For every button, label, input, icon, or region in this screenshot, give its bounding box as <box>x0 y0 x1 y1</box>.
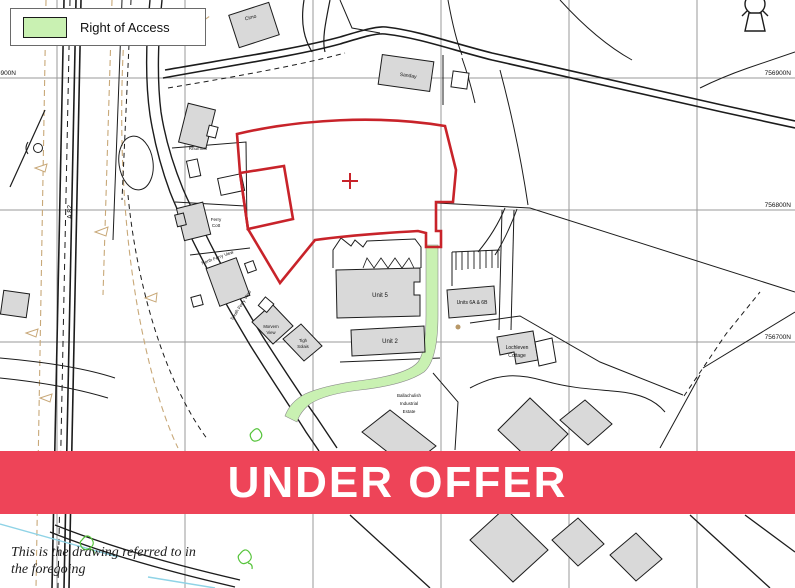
boundary-inner-parcel <box>240 166 293 229</box>
northing-label: 756700N <box>765 334 792 341</box>
under-offer-text: UNDER OFFER <box>228 458 568 508</box>
under-offer-banner: UNDER OFFER <box>0 451 795 514</box>
legend-box: Right of Access <box>10 8 206 46</box>
building-bottom-1 <box>470 508 548 582</box>
northing-label: 756800N <box>765 202 792 209</box>
label-units6: Units 6A & 6B <box>457 300 489 306</box>
label-ballachulish: Ballachulish <box>397 393 422 398</box>
label-ferry-cott: Cott <box>212 223 221 228</box>
slope-triangles <box>26 164 157 402</box>
label-a82: A 82 <box>67 205 74 219</box>
building-bottom-3 <box>610 533 662 581</box>
site-plan: 756900N 756800N 756700N 756900N <box>0 0 795 588</box>
building-morvern-view <box>252 304 322 361</box>
label-tigh-solais: Tigh <box>299 338 308 343</box>
certification-text: This is the drawing referred to in the f… <box>11 544 196 578</box>
label-morvern-view: View <box>266 330 276 335</box>
building-lower-right-2 <box>560 400 612 445</box>
outbuilding <box>451 71 469 89</box>
building-bottom-2 <box>552 518 604 566</box>
centre-cross-marker <box>342 173 358 189</box>
label-morvern-view: Morvern <box>263 324 279 329</box>
building-ferry-cott <box>175 202 211 241</box>
outbuilding <box>245 261 257 273</box>
northing-label: 756900N <box>765 70 792 77</box>
manhole-marker <box>456 325 461 330</box>
label-ballachulish: Estate <box>403 409 416 414</box>
legend-label: Right of Access <box>80 20 170 35</box>
outbuilding <box>191 295 203 307</box>
label-unit5: Unit 5 <box>372 293 388 299</box>
legend-swatch-right-of-access <box>23 17 67 38</box>
north-arrow-symbol <box>742 0 768 31</box>
building-unit5-front <box>333 238 421 268</box>
certification-line: This is the drawing referred to in <box>11 544 196 561</box>
label-rhumner: Rhumner <box>189 146 208 151</box>
label-lochleven: Cottage <box>508 353 526 359</box>
label-unit2: Unit 2 <box>382 339 398 345</box>
building-cimo <box>229 2 279 47</box>
label-ferry-cott: Ferry <box>211 217 222 222</box>
building-rhumner <box>179 103 218 149</box>
parking-bays <box>456 250 498 270</box>
outbuilding <box>186 159 200 178</box>
building-left-edge <box>0 290 29 317</box>
label-tigh-solais: Solais <box>297 344 308 349</box>
label-ballachulish: Industrial <box>400 401 418 406</box>
label-lochleven: Lochleven <box>506 345 529 351</box>
northing-label-left: 756900N <box>0 70 16 77</box>
certification-line: the foregoing <box>11 561 196 578</box>
